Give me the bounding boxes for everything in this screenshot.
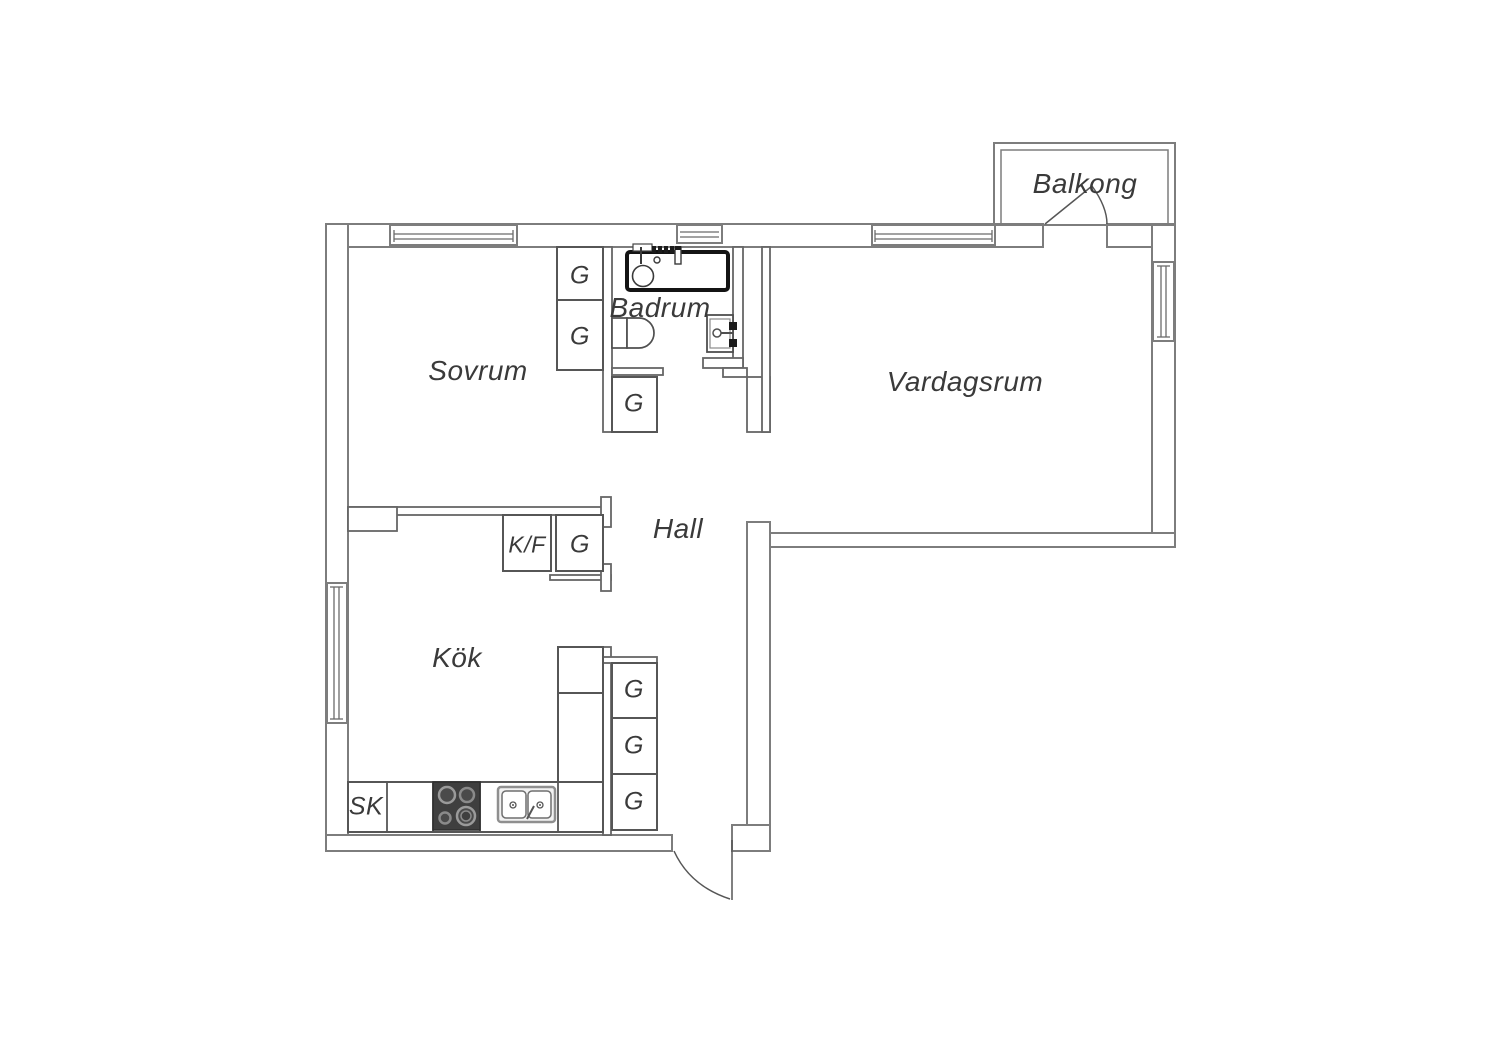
label-wardrobe-hall-upper: G <box>624 390 644 419</box>
tub-mixer-bar <box>633 244 652 251</box>
tub-shower-head <box>633 266 654 287</box>
bedroom-south-wall-thick-section <box>348 507 397 531</box>
label-living-room: Vardagsrum <box>887 366 1043 398</box>
bathroom-east-wall <box>733 247 743 368</box>
label-kitchen: Kök <box>432 642 482 674</box>
burner-bottom-left <box>440 813 451 824</box>
kitchen-sink <box>498 787 555 822</box>
living-room-south-wall <box>770 533 1175 547</box>
label-wardrobe-column-3: G <box>624 788 644 817</box>
stove <box>433 782 480 830</box>
burner-top-left <box>439 787 455 803</box>
wall-connector-piece <box>723 368 747 377</box>
kitchen-hall-wall <box>603 647 611 835</box>
burner-top-right <box>460 788 474 802</box>
outer-wall-left <box>326 224 348 851</box>
bathroom-window <box>677 225 722 243</box>
living-room-west-wall <box>762 247 770 432</box>
bathroom-sink <box>707 315 737 352</box>
label-wardrobe-column-1: G <box>624 676 644 705</box>
bathroom-west-wall <box>603 247 612 432</box>
bedroom-window <box>390 225 517 245</box>
label-cleaning-cabinet: SK <box>349 793 383 822</box>
entrance-door-swing-arc <box>674 851 730 899</box>
kitchen-tall-cabinet-lower <box>558 693 603 782</box>
sink-basin-left <box>502 791 526 818</box>
floorplan-canvas: Sovrum Badrum Vardagsrum Balkong Hall Kö… <box>0 0 1500 1060</box>
bathtub <box>627 244 728 290</box>
tub-drain <box>654 257 660 263</box>
label-wardrobe-hall-center: G <box>570 531 590 560</box>
living-room-side-window <box>1153 262 1174 341</box>
label-fridge-freezer: K/F <box>508 532 545 559</box>
label-wardrobe-bedroom-2: G <box>570 323 590 352</box>
outer-wall-bottom <box>326 835 672 851</box>
hall-right-wall-foot <box>732 825 770 851</box>
label-bedroom: Sovrum <box>428 355 527 387</box>
label-wardrobe-column-2: G <box>624 732 644 761</box>
hall-right-wall <box>747 522 770 851</box>
kitchen-tall-cabinet-upper <box>558 647 603 693</box>
bathroom-south-east-stub <box>703 358 743 368</box>
floorplan-drawing <box>0 0 1500 1060</box>
living-room-window <box>872 225 995 245</box>
kitchen-window <box>327 583 347 723</box>
label-balcony: Balkong <box>1033 168 1138 200</box>
label-hall: Hall <box>653 513 703 545</box>
label-bathroom: Badrum <box>609 292 710 324</box>
label-wardrobe-bedroom-1: G <box>570 262 590 291</box>
bathroom-south-wall <box>612 368 663 375</box>
